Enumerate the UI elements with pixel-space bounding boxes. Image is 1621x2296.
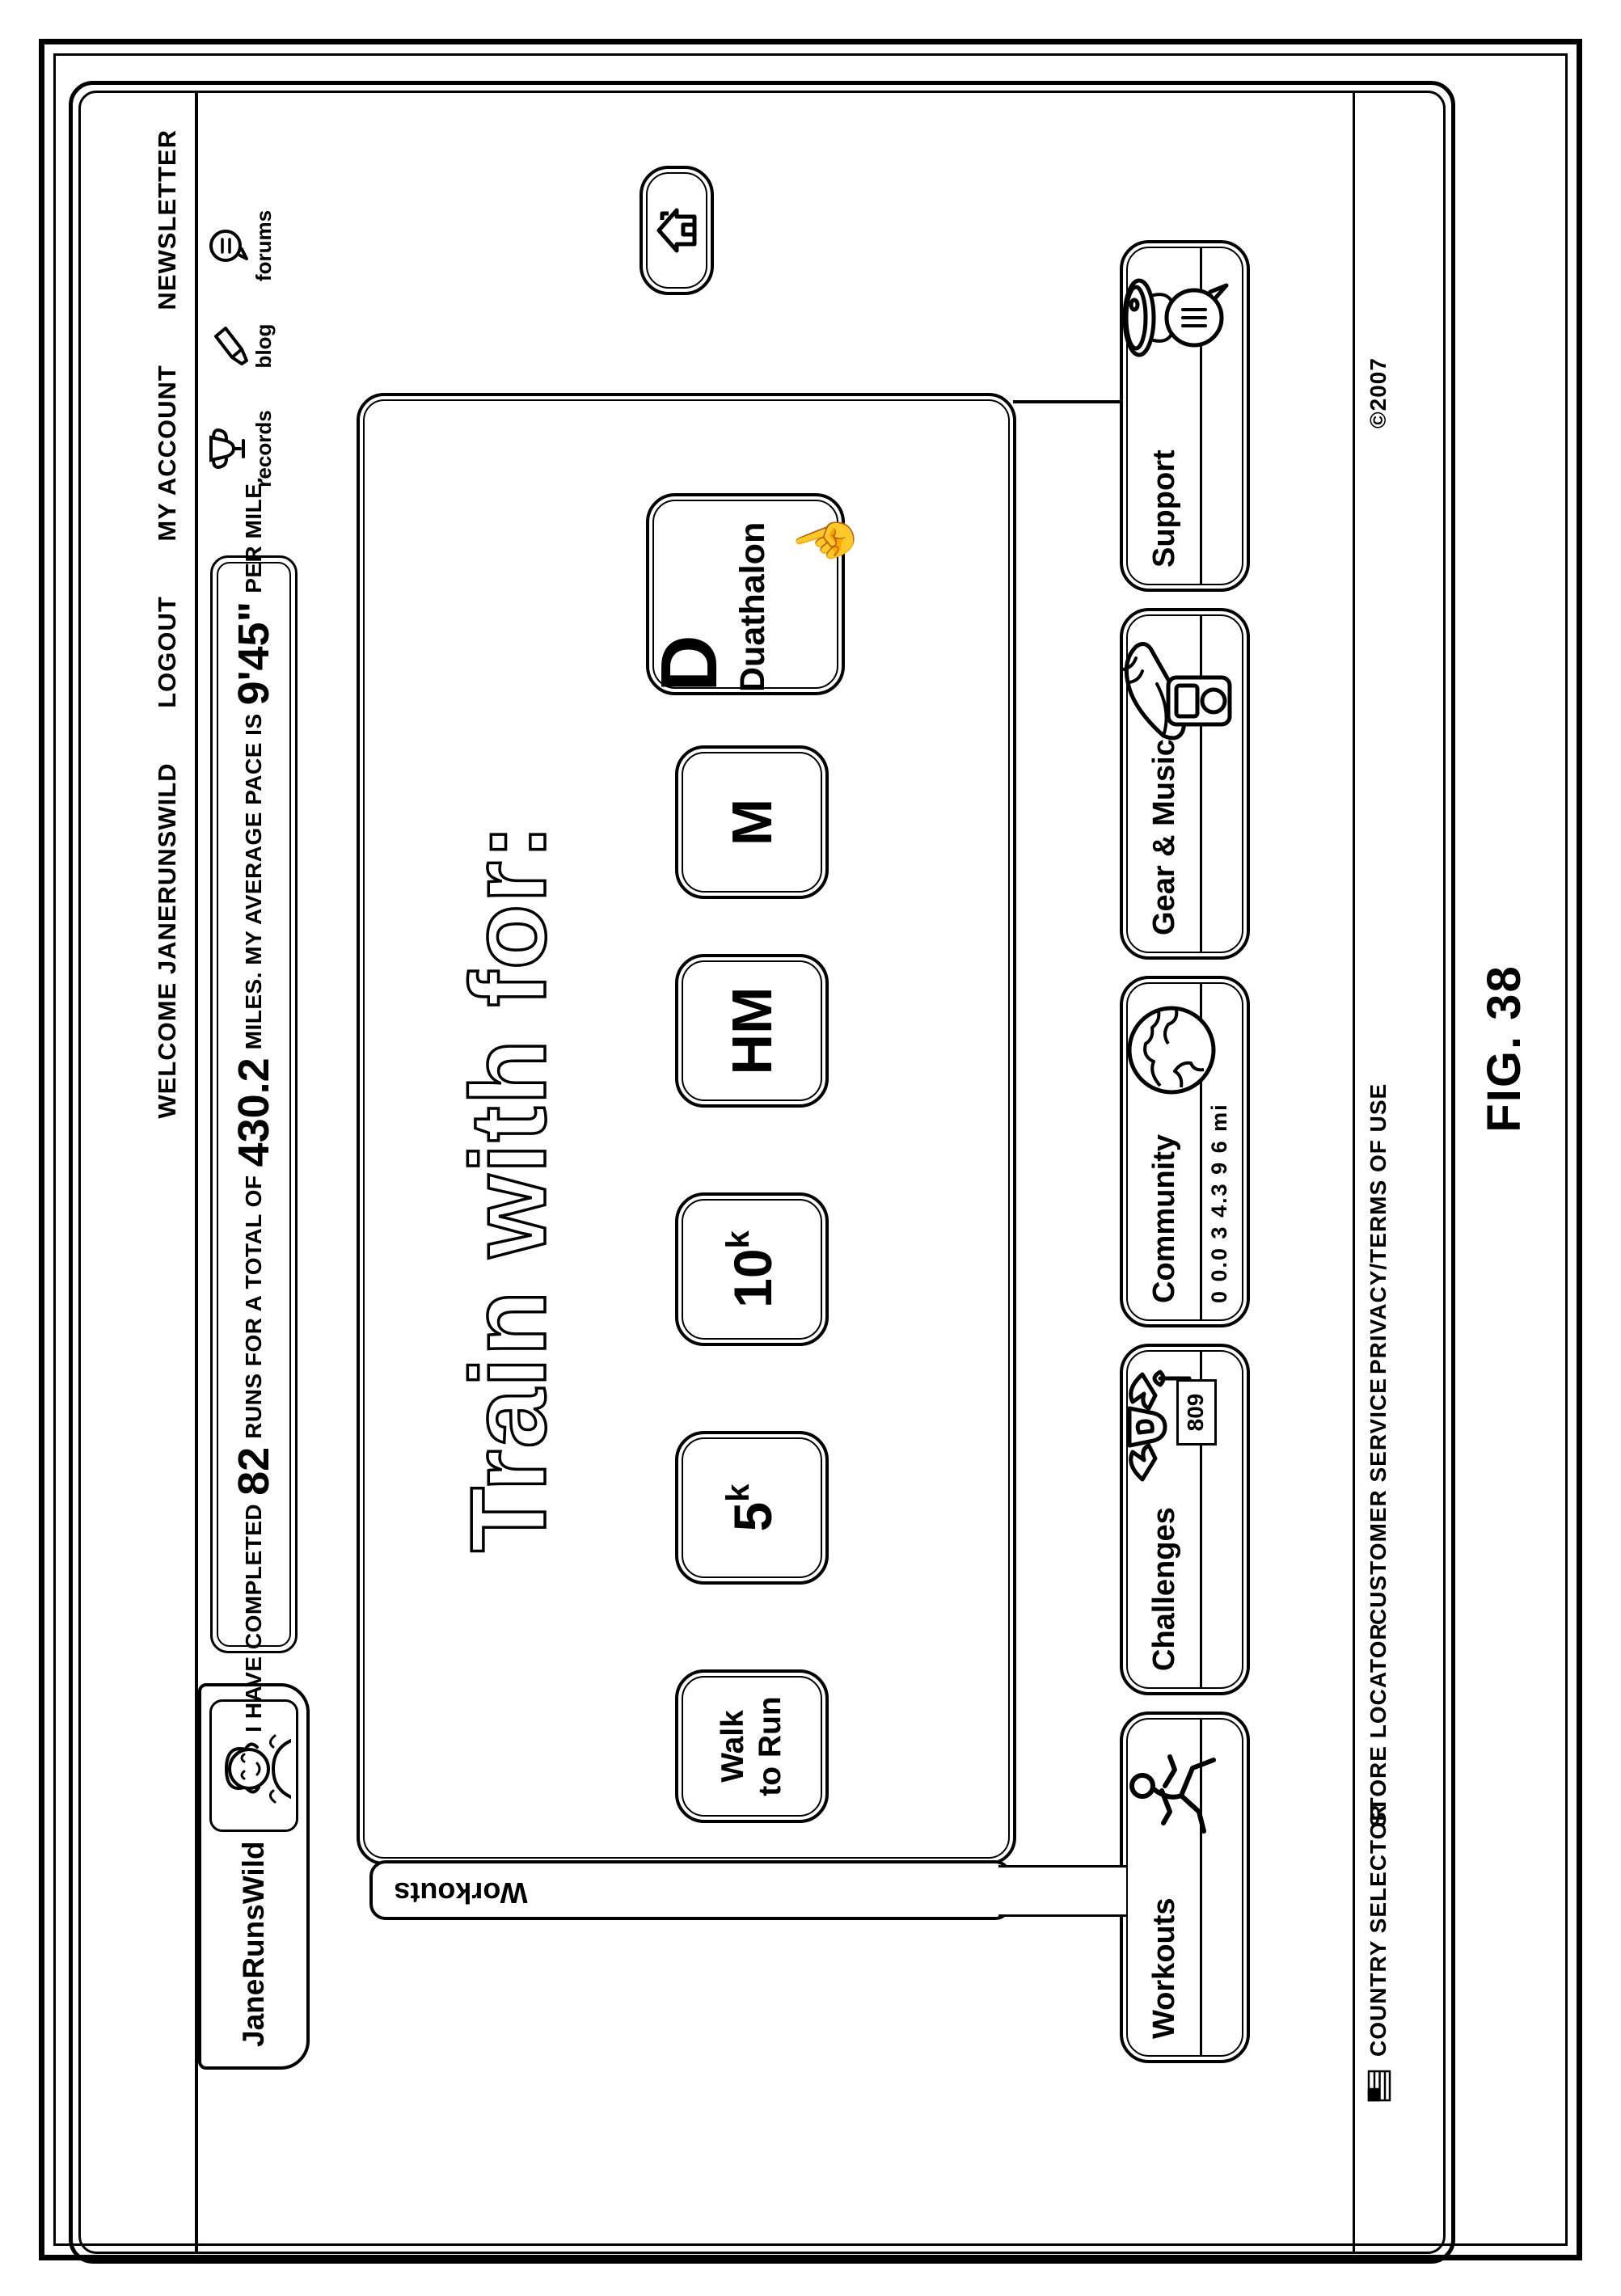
panel-right-connector (1013, 400, 1123, 403)
stats-average-pace: 9'45" (229, 601, 279, 706)
globe-icon (1112, 990, 1245, 1128)
stats-total-miles: 430.2 (229, 1057, 279, 1167)
nav-workouts-button[interactable]: Workouts (1120, 1711, 1250, 2063)
nav-workouts-label: Workouts (1147, 1897, 1182, 2039)
country-selector-link[interactable]: COUNTRY SELECTOR (1366, 1804, 1391, 2057)
10k-sup: k (720, 1230, 756, 1248)
challenge-bib-badge: 809 (1176, 1379, 1217, 1446)
runner-icon (1112, 1726, 1245, 1863)
walk-to-run-line1: Walk (715, 1696, 752, 1796)
speech-bubble-icon (206, 197, 248, 294)
privacy-terms-link[interactable]: PRIVACY/TERMS OF USE (1366, 1083, 1391, 1374)
patent-page: FIG. 38 WELCOME JANERUNSWILD LOGOUT MY A… (0, 0, 1621, 2296)
stats-banner: I HAVE COMPLETED 82 RUNS FOR A TOTAL OF … (210, 555, 298, 1653)
10k-label: 10 (723, 1248, 783, 1307)
nav-gear-music-label: Gear & Music (1147, 739, 1182, 935)
walk-to-run-line2: to Run (752, 1696, 789, 1796)
stats-runs-count: 82 (229, 1447, 279, 1496)
quick-link-forums[interactable]: forums (206, 197, 276, 294)
nav-community-label: Community (1147, 1134, 1182, 1303)
workouts-panel-tab-label: Workouts (380, 1876, 542, 1910)
5k-button[interactable]: 5k (675, 1431, 829, 1585)
home-button[interactable] (640, 166, 714, 295)
m-label: M (720, 799, 784, 846)
shoe-music-icon (1112, 623, 1245, 760)
quick-link-blog[interactable]: blog (206, 298, 276, 395)
logout-link[interactable]: LOGOUT (153, 596, 181, 708)
flag-icon[interactable] (1367, 2070, 1391, 2102)
quick-link-records[interactable]: records (206, 400, 276, 497)
duathalon-initial: D (649, 496, 728, 692)
copyright-text: ©2007 (1366, 357, 1391, 428)
10k-button[interactable]: 10k (675, 1192, 829, 1346)
stats-mid1: RUNS FOR A TOTAL OF (241, 1175, 267, 1438)
5k-sup: k (720, 1484, 756, 1502)
username-label: JaneRunsWild (237, 1841, 271, 2047)
walk-to-run-button[interactable]: Walk to Run (675, 1669, 829, 1823)
footer-divider (1353, 92, 1355, 2252)
train-heading: Train with for: (447, 822, 569, 1552)
welcome-text: WELCOME JANERUNSWILD (153, 762, 181, 1118)
forums-label: forums (251, 197, 276, 294)
trophy-icon (206, 400, 248, 497)
nav-challenges-button[interactable]: Challenges 809 (1120, 1344, 1250, 1695)
website-screen: WELCOME JANERUNSWILD LOGOUT MY ACCOUNT N… (69, 81, 1455, 2264)
half-marathon-button[interactable]: HM (675, 954, 829, 1108)
marathon-button[interactable]: M (675, 745, 829, 899)
store-locator-link[interactable]: STORE LOCATOR (1366, 1623, 1391, 1827)
stats-mid2: MILES. MY AVERAGE PACE IS (241, 713, 267, 1049)
nav-challenges-label: Challenges (1147, 1507, 1182, 1671)
nav-gear-music-button[interactable]: Gear & Music (1120, 608, 1250, 960)
blog-label: blog (251, 298, 276, 395)
duathalon-label: Duathalon (733, 496, 773, 692)
stats-text: I HAVE COMPLETED 82 RUNS FOR A TOTAL OF … (213, 558, 295, 1651)
5k-label: 5 (723, 1502, 783, 1532)
home-icon (654, 204, 699, 257)
records-label: records (251, 400, 276, 497)
nav-community-button[interactable]: Community 0 0.0 3 4.3 9 6 mi (1120, 976, 1250, 1327)
nav-support-button[interactable]: Support (1120, 240, 1250, 592)
active-tab-connector (998, 1865, 1126, 1917)
newsletter-link[interactable]: NEWSLETTER (153, 129, 181, 310)
pencil-icon (206, 298, 248, 395)
nav-support-label: Support (1147, 449, 1182, 568)
header-links: WELCOME JANERUNSWILD LOGOUT MY ACCOUNT N… (153, 129, 182, 1119)
community-odometer: 0 0.0 3 4.3 9 6 mi (1207, 1103, 1232, 1303)
workouts-panel-tab[interactable]: Workouts (369, 1860, 1011, 1920)
stats-prefix: I HAVE COMPLETED (241, 1504, 267, 1733)
user-profile-tab[interactable]: JaneRunsWild (198, 1683, 310, 2070)
figure-label: FIG. 38 (1477, 960, 1534, 1137)
my-account-link[interactable]: MY ACCOUNT (153, 365, 181, 541)
whistle-chat-icon (1112, 255, 1245, 392)
customer-service-link[interactable]: CUSTOMER SERVICE (1366, 1378, 1391, 1625)
hm-label: HM (720, 987, 784, 1075)
